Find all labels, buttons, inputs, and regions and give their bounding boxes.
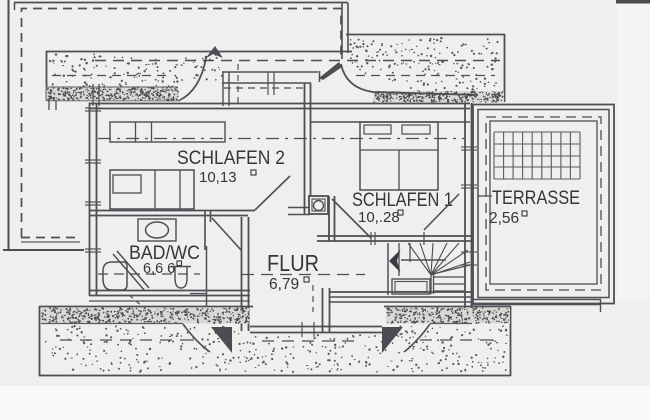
svg-text:FLUR: FLUR — [267, 250, 319, 276]
svg-text:TERRASSE: TERRASSE — [492, 187, 580, 209]
svg-text:SCHLAFEN 1: SCHLAFEN 1 — [352, 189, 453, 211]
svg-text:10,.28: 10,.28 — [358, 209, 400, 226]
svg-text:SCHLAFEN 2: SCHLAFEN 2 — [177, 147, 285, 169]
svg-text:2,56: 2,56 — [489, 210, 519, 227]
svg-text:6,79: 6,79 — [269, 276, 299, 293]
svg-text:10,13: 10,13 — [199, 169, 237, 186]
svg-text:6,6 6: 6,6 6 — [143, 261, 175, 277]
